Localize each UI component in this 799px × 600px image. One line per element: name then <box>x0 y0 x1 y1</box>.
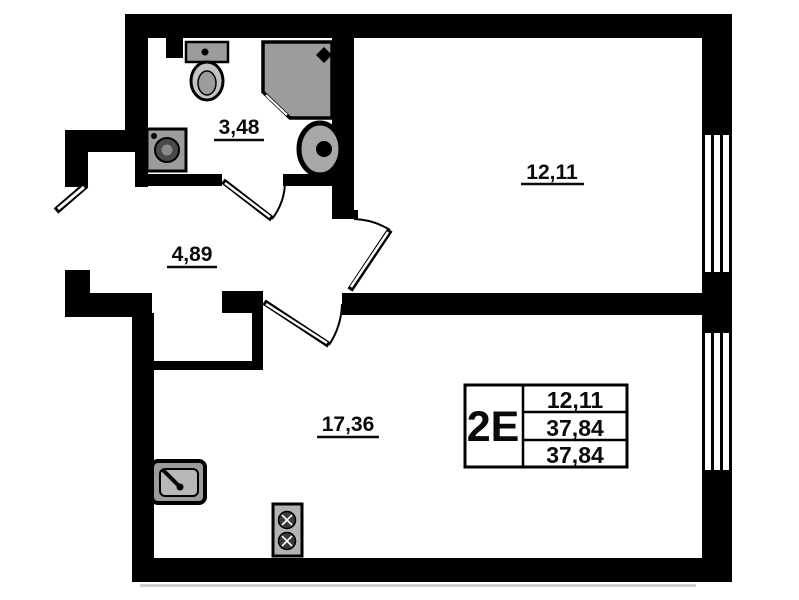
floor-plan: 3,48 4,89 12,11 17,36 2E 12,11 37,84 37,… <box>0 0 799 600</box>
hallway-area-label: 4,89 <box>172 243 213 266</box>
kitchen-area-label: 17,36 <box>322 413 375 436</box>
floor-plan-canvas: 3,48 4,89 12,11 17,36 2E 12,11 37,84 37,… <box>0 0 799 600</box>
washing-machine-icon <box>147 129 186 171</box>
wall-right-top <box>702 14 732 135</box>
unit-area-row-3: 37,84 <box>546 442 604 468</box>
bathroom-door-symbol <box>223 181 285 219</box>
unit-area-row-2: 37,84 <box>546 415 604 441</box>
stove-icon <box>273 504 302 556</box>
kitchen-room-door-symbol <box>264 302 342 345</box>
toilet-icon <box>186 42 228 100</box>
wall-right-middle-pier <box>702 272 732 333</box>
wall-bottom <box>132 558 732 582</box>
room-door-symbol <box>350 219 390 290</box>
wall-room2-door-jamb <box>222 291 263 313</box>
wall-duct-block <box>166 38 183 58</box>
window-symbol-1 <box>704 135 731 272</box>
kitchen-sink-icon <box>152 461 205 503</box>
bathroom-area-label: 3,48 <box>219 116 260 139</box>
wall-alcove-bottom <box>154 361 263 370</box>
wall-middle-horizontal <box>342 293 702 315</box>
wall-bathroom-bottom-left <box>135 174 222 186</box>
entrance-door-symbol <box>56 185 86 211</box>
unit-info-box: 2E 12,11 37,84 37,84 <box>465 385 627 468</box>
wall-entrance-stub-upper <box>65 130 88 187</box>
window-symbol-2 <box>704 333 731 470</box>
room-area-label: 12,11 <box>526 161 578 184</box>
unit-area-row-1: 12,11 <box>547 387 603 413</box>
wall-right-bottom <box>702 470 732 582</box>
scan-shadow-line <box>140 584 696 587</box>
unit-code-label: 2E <box>467 403 520 451</box>
shower-cabin-icon <box>263 42 332 118</box>
washbasin-icon <box>299 123 341 175</box>
wall-top <box>125 14 732 38</box>
wall-room2-left <box>132 313 154 582</box>
wall-entrance-stub-lower <box>65 270 90 317</box>
wall-divider-jamb-cap <box>332 210 358 219</box>
